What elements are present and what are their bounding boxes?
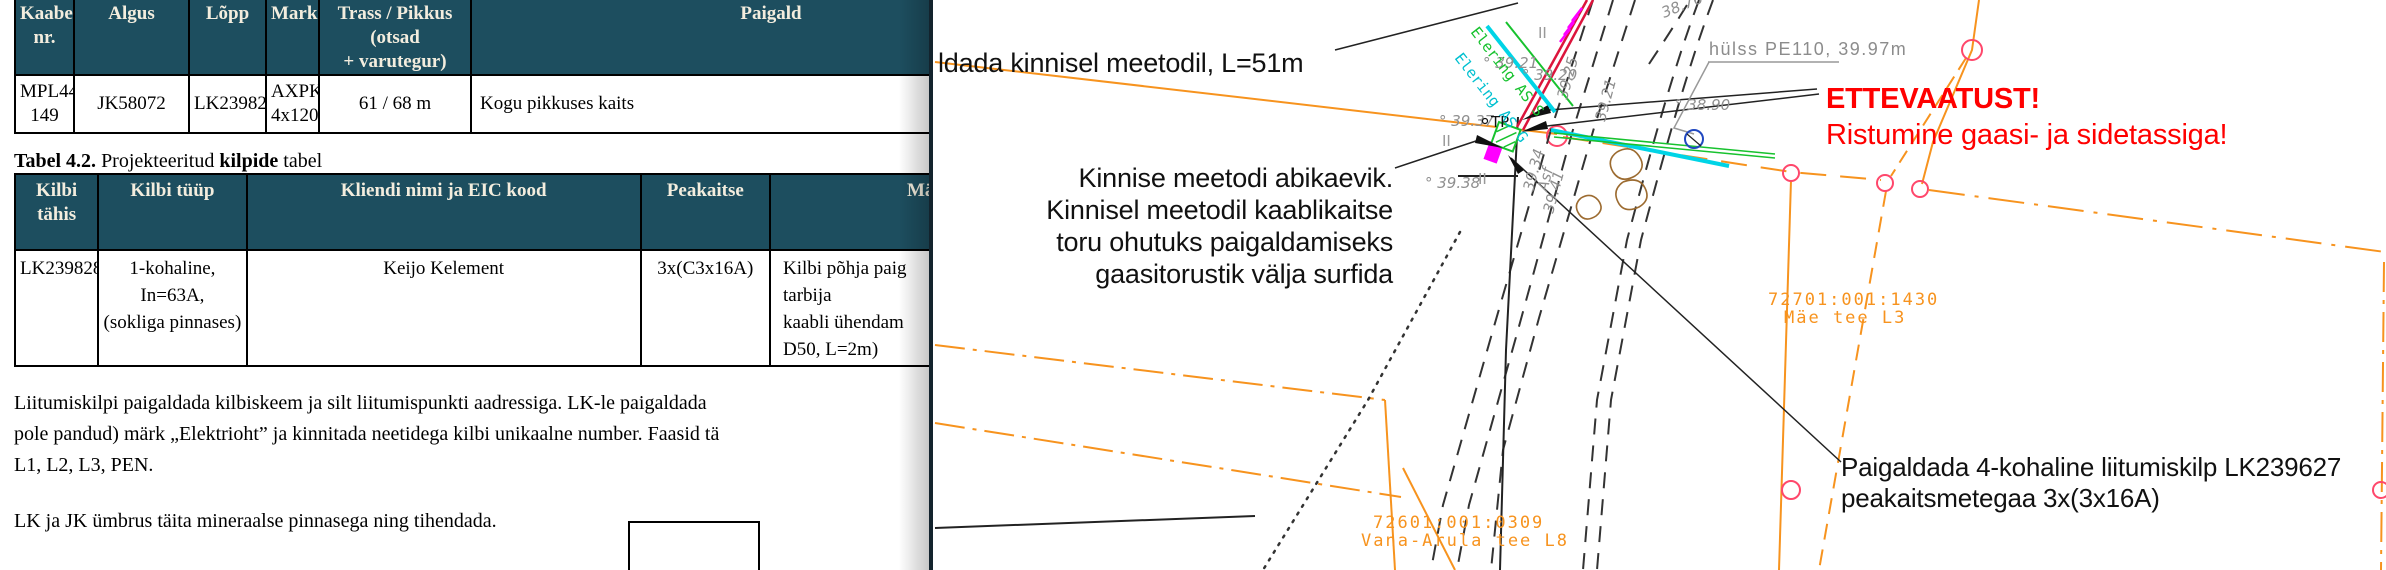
cadastre-name-1: Mäe tee L3 [1784, 308, 1906, 328]
vegetation-icons [1576, 149, 1647, 219]
col-trass-pikkus: Trass / Pikkus (otsad + varutegur) [319, 0, 471, 75]
caption-text2: tabel [278, 150, 322, 172]
crossing-marker-icon [1685, 130, 1703, 148]
auxiliary-pit-note: Kinnise meetodi abikaevik. Kinnisel meet… [973, 162, 1393, 290]
document-pane[interactable]: Kaabel nr. Algus Lõpp Mark Trass / Pikku… [0, 0, 929, 570]
parallel-mark: II [1478, 170, 1487, 188]
caption-keyword: kilpide [219, 150, 278, 172]
cell-cable-nr: MPL446 149 [15, 75, 74, 133]
cell-end: LK239828 [189, 75, 266, 133]
cell-install: Kogu pikkuses kaits [471, 75, 929, 133]
cell-start: JK58072 [74, 75, 189, 133]
table-row: MPL446 149 JK58072 LK239828 AXPK 4x120 6… [15, 75, 929, 133]
cell-main-fuse: 3x(C3x16A) [641, 250, 770, 366]
col-kliendi-nimi: Kliendi nimi ja EIC kood [247, 174, 641, 250]
elev-label: ° 39.37 [1439, 112, 1495, 130]
connection-cabinet-note: Paigaldada 4-kohaline liitumiskilp LK239… [1841, 452, 2341, 514]
col-paigaldus: Paigald [471, 0, 929, 75]
col-algus: Algus [74, 0, 189, 75]
paragraph-backfill: LK ja JK ümbrus täita mineraalse pinnase… [14, 506, 929, 537]
warning-title: ETTEVAATUST! [1826, 83, 2040, 116]
col-lopp: Lõpp [189, 0, 266, 75]
elev-label: ° 39.38 [1425, 174, 1480, 192]
cable-table: Kaabel nr. Algus Lõpp Mark Trass / Pikku… [14, 0, 929, 134]
caption-number: Tabel 4.2. [14, 150, 96, 172]
caption-text1: Projekteeritud [96, 150, 219, 172]
cadastre-code-2: 72601:001:0309 [1373, 513, 1544, 533]
elev-label: 39.21 [1591, 77, 1620, 123]
col-peakaitse: Peakaitse [641, 174, 770, 250]
table42-caption: Tabel 4.2. Projekteeritud kilpide tabel [14, 150, 322, 173]
parallel-mark: II [1538, 24, 1547, 42]
page-edge-shadow [899, 0, 929, 570]
col-kaabel-nr: Kaabel nr. [15, 0, 74, 75]
cell-cabinet-type: 1-kohaline, In=63A, (sokliga pinnases) [98, 250, 246, 366]
cell-client-name: Keijo Kelement [247, 250, 641, 366]
table-header-row: Kaabel nr. Algus Lõpp Mark Trass / Pikku… [15, 0, 929, 75]
cabinet-table: Kilbi tähis Kilbi tüüp Kliendi nimi ja E… [14, 173, 929, 367]
elev-label: 38.76 [1659, 0, 1706, 22]
parallel-mark: II [1442, 132, 1451, 150]
cadastre-code-1: 72701:001:1430 [1768, 290, 1939, 310]
cell-mark: AXPK 4x120 [266, 75, 319, 133]
elev-label: 39.25 [1553, 55, 1582, 101]
cadastre-name-2: Vana-Arula tee L8 [1361, 531, 1569, 551]
table-row: LK239828 1-kohaline, In=63A, (sokliga pi… [15, 250, 929, 366]
closed-method-note: ldada kinnisel meetodil, L=51m [938, 48, 1303, 79]
bottom-figure-box [628, 521, 760, 570]
paragraph-liitumiskilp: Liitumiskilpi paigaldada kilbiskeem ja s… [14, 388, 929, 481]
col-kilbi-tahis: Kilbi tähis [15, 174, 98, 250]
table-header-row: Kilbi tähis Kilbi tüüp Kliendi nimi ja E… [15, 174, 929, 250]
cad-map-pane[interactable]: ° 39.21 ° 39.20 39.25 39.21 ° 38.90 38.7… [933, 0, 2386, 570]
warning-body: Ristumine gaasi- ja sidetassiga! [1826, 119, 2227, 152]
leader-lines [1335, 3, 1841, 462]
col-kilbi-tuup: Kilbi tüüp [98, 174, 246, 250]
col-mark: Mark [266, 0, 319, 75]
cell-cabinet-id: LK239828 [15, 250, 98, 366]
elev-label: ° 38.90 [1675, 96, 1730, 114]
cell-length: 61 / 68 m [319, 75, 471, 133]
sleeve-label: hülss PE110, 39.97m [1709, 39, 1907, 60]
